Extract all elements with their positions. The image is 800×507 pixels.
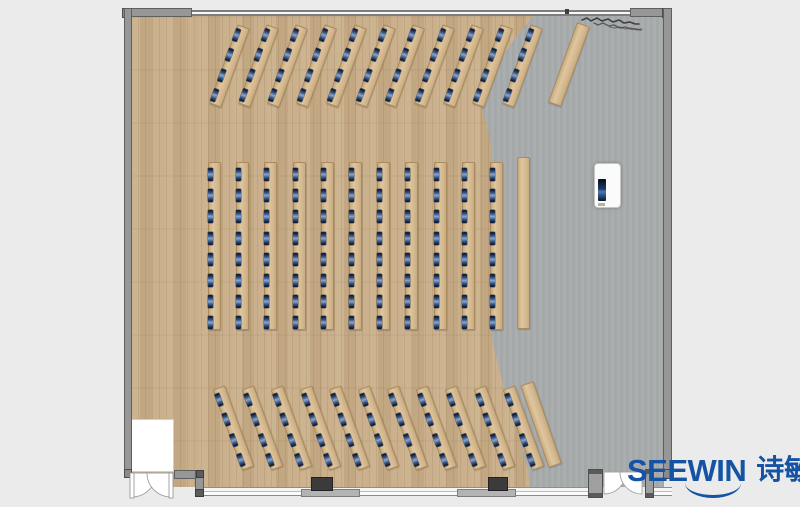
seat-monitor xyxy=(208,189,213,202)
seat-monitor xyxy=(236,168,241,181)
seat-monitor xyxy=(405,253,410,266)
seat-monitor xyxy=(208,232,213,245)
seat-monitor xyxy=(286,433,295,447)
seat-monitor xyxy=(250,413,259,427)
seat-monitor xyxy=(377,295,382,308)
seat-monitor xyxy=(434,253,439,266)
seat-monitor xyxy=(236,210,241,223)
top-wall-left-segment xyxy=(124,8,192,17)
seat-monitor xyxy=(504,393,513,407)
seat-monitor xyxy=(524,28,533,42)
seat-monitor xyxy=(417,393,426,407)
seat-monitor xyxy=(434,210,439,223)
seat-monitor xyxy=(321,232,326,245)
seat-monitor xyxy=(261,28,270,42)
seat-monitor xyxy=(377,210,382,223)
seat-monitor xyxy=(431,433,440,447)
seat-monitor xyxy=(510,68,519,82)
seat-monitor xyxy=(446,393,455,407)
seat-monitor xyxy=(228,433,237,447)
seat-monitor xyxy=(349,295,354,308)
seat-monitor xyxy=(293,295,298,308)
seat-monitor xyxy=(434,316,439,329)
seat-monitor xyxy=(451,68,460,82)
seat-monitor xyxy=(490,295,495,308)
seat-monitor xyxy=(481,68,490,82)
seat-monitor xyxy=(371,48,380,62)
seat-monitor xyxy=(208,253,213,266)
seat-monitor xyxy=(518,433,527,447)
desk-row-middle-5 xyxy=(321,162,334,330)
seat-monitor xyxy=(308,413,317,427)
seat-monitor xyxy=(327,88,336,102)
seat-monitor xyxy=(208,316,213,329)
seat-monitor xyxy=(473,88,482,102)
seat-monitor xyxy=(388,393,397,407)
seat-monitor xyxy=(429,48,438,62)
wall-tick xyxy=(565,9,569,14)
seat-monitor xyxy=(444,88,453,102)
seat-monitor xyxy=(511,413,520,427)
side-table-top xyxy=(548,22,590,107)
seat-monitor xyxy=(405,232,410,245)
seat-monitor xyxy=(453,413,462,427)
seat-monitor xyxy=(297,88,306,102)
seat-monitor xyxy=(208,168,213,181)
seat-monitor xyxy=(321,253,326,266)
seat-monitor xyxy=(490,274,495,287)
seat-monitor xyxy=(405,168,410,181)
seat-monitor xyxy=(290,28,299,42)
seat-monitor xyxy=(236,295,241,308)
seat-monitor xyxy=(257,433,266,447)
seat-monitor xyxy=(239,88,248,102)
seat-monitor xyxy=(224,48,233,62)
seat-monitor xyxy=(337,413,346,427)
furniture-layer xyxy=(0,0,800,507)
seat-monitor xyxy=(341,48,350,62)
seat-monitor xyxy=(214,393,223,407)
seat-monitor xyxy=(217,68,226,82)
seat-monitor xyxy=(268,88,277,102)
seat-monitor xyxy=(283,48,292,62)
seat-monitor xyxy=(221,413,230,427)
seat-monitor xyxy=(321,210,326,223)
seat-monitor xyxy=(236,189,241,202)
desk-row-middle-7 xyxy=(377,162,390,330)
seat-monitor xyxy=(466,28,475,42)
seat-monitor xyxy=(468,453,477,467)
seat-monitor xyxy=(321,274,326,287)
podium xyxy=(594,163,621,208)
seat-monitor xyxy=(490,253,495,266)
desk-row-middle-8 xyxy=(405,162,418,330)
seat-monitor xyxy=(490,210,495,223)
seat-monitor xyxy=(275,68,284,82)
seat-monitor xyxy=(321,189,326,202)
alcove-wall-dot-bottom xyxy=(195,489,204,497)
seat-monitor xyxy=(424,413,433,427)
seat-monitor xyxy=(293,316,298,329)
seat-monitor xyxy=(272,393,281,407)
seat-monitor xyxy=(208,210,213,223)
seat-monitor xyxy=(405,295,410,308)
seat-monitor xyxy=(344,433,353,447)
seat-monitor xyxy=(434,295,439,308)
seat-monitor xyxy=(356,88,365,102)
seat-monitor xyxy=(349,28,358,42)
seat-monitor xyxy=(264,253,269,266)
seat-monitor xyxy=(422,68,431,82)
entry-alcove xyxy=(132,419,174,472)
seat-monitor xyxy=(400,48,409,62)
seat-monitor xyxy=(321,295,326,308)
seat-monitor xyxy=(439,453,448,467)
seat-monitor xyxy=(293,232,298,245)
seat-monitor xyxy=(264,274,269,287)
seat-monitor xyxy=(349,210,354,223)
seat-monitor xyxy=(264,168,269,181)
seat-monitor xyxy=(321,316,326,329)
seat-monitor xyxy=(462,295,467,308)
seat-monitor xyxy=(405,210,410,223)
seat-monitor xyxy=(323,453,332,467)
seat-monitor xyxy=(377,168,382,181)
seat-monitor xyxy=(293,274,298,287)
seat-monitor xyxy=(405,274,410,287)
seat-monitor xyxy=(462,316,467,329)
seat-monitor xyxy=(264,210,269,223)
desk-row-middle-9 xyxy=(434,162,447,330)
seat-monitor xyxy=(482,413,491,427)
seat-monitor xyxy=(293,210,298,223)
seat-monitor xyxy=(334,68,343,82)
seat-monitor xyxy=(462,210,467,223)
seat-monitor xyxy=(405,189,410,202)
seat-monitor xyxy=(319,28,328,42)
side-table-middle xyxy=(517,157,530,329)
seat-monitor xyxy=(236,316,241,329)
seat-monitor xyxy=(462,189,467,202)
structural-column-right xyxy=(488,477,508,491)
seat-monitor xyxy=(434,274,439,287)
seat-monitor xyxy=(363,68,372,82)
seat-monitor xyxy=(462,253,467,266)
desk-row-middle-6 xyxy=(349,162,362,330)
seat-monitor xyxy=(305,68,314,82)
seat-monitor xyxy=(243,393,252,407)
seat-monitor xyxy=(373,433,382,447)
seat-monitor xyxy=(475,393,484,407)
seat-monitor xyxy=(231,28,240,42)
desk-row-middle-1 xyxy=(208,162,221,330)
desk-row-middle-4 xyxy=(293,162,306,330)
seat-monitor xyxy=(462,232,467,245)
seat-monitor xyxy=(495,28,504,42)
seat-monitor xyxy=(459,48,468,62)
seat-monitor xyxy=(315,433,324,447)
seat-monitor xyxy=(497,453,506,467)
seat-monitor xyxy=(393,68,402,82)
seat-monitor xyxy=(462,274,467,287)
seat-monitor xyxy=(236,453,245,467)
seat-monitor xyxy=(279,413,288,427)
seat-monitor xyxy=(517,48,526,62)
brand-logo-latin: SEEWIN xyxy=(627,455,746,486)
seat-monitor xyxy=(349,232,354,245)
podium-screen xyxy=(598,179,606,201)
seat-monitor xyxy=(434,189,439,202)
seat-monitor xyxy=(410,453,419,467)
seat-monitor xyxy=(462,168,467,181)
seat-monitor xyxy=(264,189,269,202)
seat-monitor xyxy=(312,48,321,62)
seat-monitor xyxy=(208,295,213,308)
seat-monitor xyxy=(490,189,495,202)
seat-monitor xyxy=(489,433,498,447)
left-wall xyxy=(124,8,132,470)
seat-monitor xyxy=(434,232,439,245)
seat-monitor xyxy=(236,274,241,287)
seat-monitor xyxy=(490,232,495,245)
seat-monitor xyxy=(210,88,219,102)
seat-monitor xyxy=(321,168,326,181)
seat-monitor xyxy=(208,274,213,287)
floor-plan-canvas: SEEWIN 诗敏 xyxy=(0,0,800,507)
seat-monitor xyxy=(253,48,262,62)
seat-monitor xyxy=(460,433,469,447)
seat-monitor xyxy=(490,168,495,181)
seat-monitor xyxy=(265,453,274,467)
seat-monitor xyxy=(434,168,439,181)
seat-monitor xyxy=(264,316,269,329)
seat-monitor xyxy=(526,453,535,467)
seat-monitor xyxy=(246,68,255,82)
seat-monitor xyxy=(377,316,382,329)
seat-monitor xyxy=(407,28,416,42)
seat-monitor xyxy=(378,28,387,42)
desk-row-middle-3 xyxy=(264,162,277,330)
seat-monitor xyxy=(294,453,303,467)
seat-monitor xyxy=(293,189,298,202)
double-door-bottom-left xyxy=(128,471,175,502)
seat-monitor xyxy=(377,253,382,266)
seat-monitor xyxy=(503,88,512,102)
seat-monitor xyxy=(264,295,269,308)
seat-monitor xyxy=(349,189,354,202)
alcove-wall-dot-top xyxy=(196,470,204,478)
seat-monitor xyxy=(349,168,354,181)
seat-monitor xyxy=(236,232,241,245)
seat-monitor xyxy=(405,316,410,329)
desk-row-middle-11 xyxy=(490,162,503,330)
seat-monitor xyxy=(236,253,241,266)
wall-scribble xyxy=(580,13,655,31)
seat-monitor xyxy=(330,393,339,407)
seat-monitor xyxy=(366,413,375,427)
podium-vent xyxy=(598,203,605,206)
seat-monitor xyxy=(490,316,495,329)
desk-row-middle-10 xyxy=(462,162,475,330)
seat-monitor xyxy=(349,253,354,266)
seat-monitor xyxy=(488,48,497,62)
seat-monitor xyxy=(381,453,390,467)
seat-monitor xyxy=(437,28,446,42)
seat-monitor xyxy=(395,413,404,427)
seat-monitor xyxy=(377,232,382,245)
seat-monitor xyxy=(301,393,310,407)
seat-monitor xyxy=(264,232,269,245)
seat-monitor xyxy=(402,433,411,447)
seat-monitor xyxy=(349,316,354,329)
seat-monitor xyxy=(385,88,394,102)
structural-column-left xyxy=(311,477,333,491)
seat-monitor xyxy=(293,168,298,181)
desk-row-middle-2 xyxy=(236,162,249,330)
brand-logo: SEEWIN 诗敏 xyxy=(627,449,800,491)
seat-monitor xyxy=(293,253,298,266)
seat-monitor xyxy=(415,88,424,102)
bottom-glass-wall-left xyxy=(197,487,589,496)
seat-monitor xyxy=(349,274,354,287)
seat-monitor xyxy=(359,393,368,407)
seat-monitor xyxy=(377,189,382,202)
brand-logo-cjk: 诗敏 xyxy=(756,456,800,484)
seat-monitor xyxy=(352,453,361,467)
right-wall xyxy=(663,8,672,470)
seat-monitor xyxy=(377,274,382,287)
